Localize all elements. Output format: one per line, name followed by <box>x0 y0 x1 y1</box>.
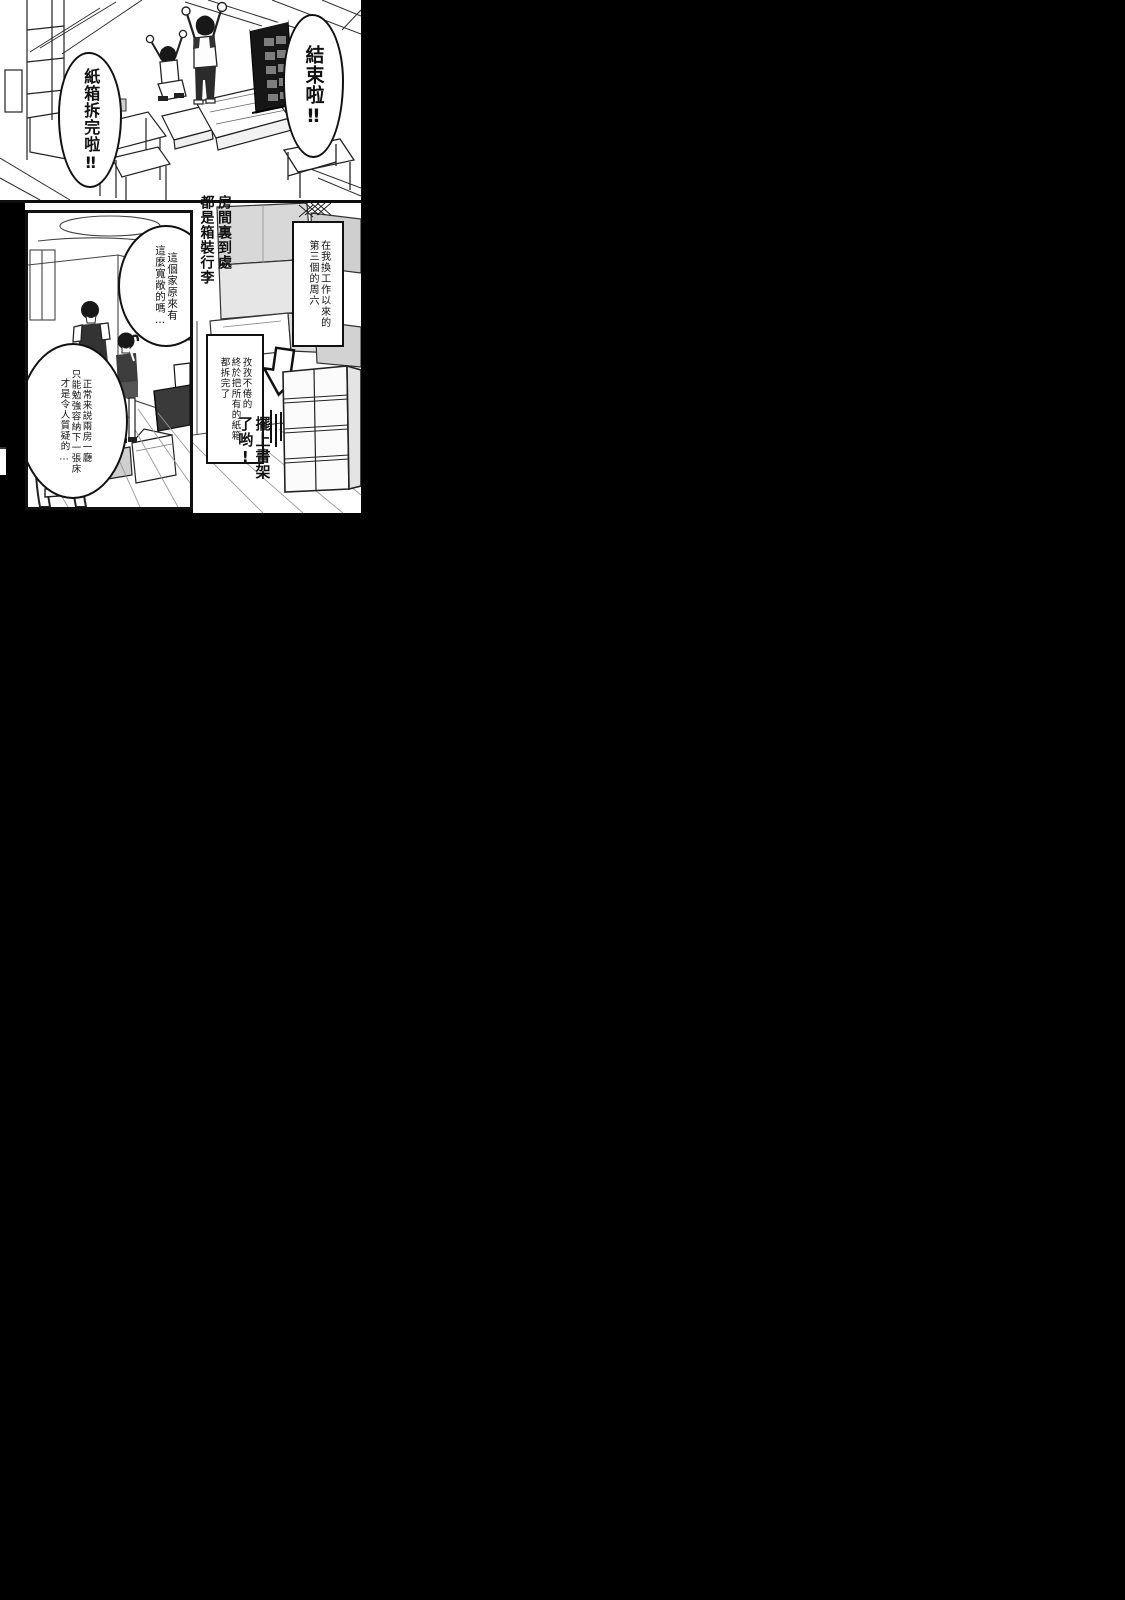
speech-bubble-spacious-text: 這個家原來有 這麼寬敞的嗎… <box>154 245 178 327</box>
speech-bubble-doubt-text: 正常来説兩房一廳 只能勉強容納下一張床 才是令人質疑的… <box>54 369 91 474</box>
cube-bookshelf <box>283 366 361 492</box>
panel-room: 這個家原來有 這麼寬敞的嗎… 正常来説兩房一廳 只能勉強容納下一張床 才是令人質… <box>25 210 193 510</box>
caption-saturday-text: 在我換工作以來的 第三個的周六 <box>306 240 329 328</box>
speech-bubble-boxes-done-text: 紙箱拆完啦‼ <box>81 68 100 173</box>
character-girl <box>146 30 186 101</box>
speech-bubble-finished-text: 結束啦‼ <box>302 45 324 128</box>
couch <box>154 363 190 431</box>
character-man <box>182 3 227 105</box>
caption-saturday: 在我換工作以來的 第三個的周六 <box>292 221 344 347</box>
shout-bookshelf: 擺上書架 了哟! <box>236 416 271 508</box>
panel-celebration: 結束啦‼ 紙箱拆完啦‼ <box>0 0 361 203</box>
narration-title: 房間裏到處 都是箱裝行李 <box>197 195 232 345</box>
page-edge-artifact <box>0 447 6 475</box>
